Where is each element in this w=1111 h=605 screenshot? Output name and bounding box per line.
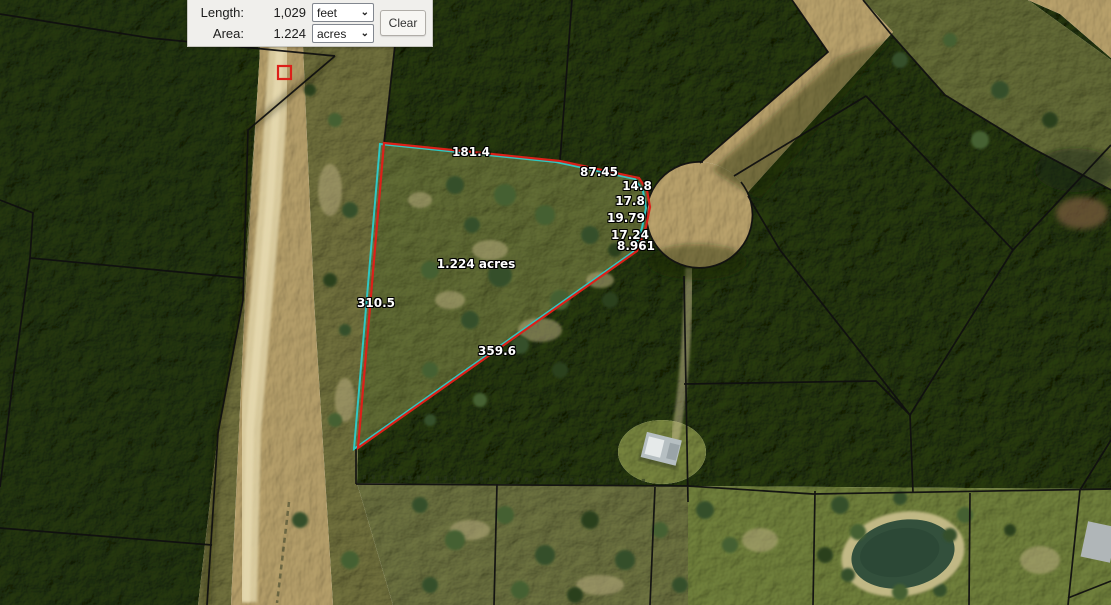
- map-viewport[interactable]: 181.4 87.45 14.8 17.8 19.79 17.24 8.961 …: [0, 0, 1111, 605]
- length-value: 1,029: [250, 5, 306, 20]
- length-label: Length:: [194, 5, 244, 20]
- area-label-panel: Area:: [194, 26, 244, 41]
- chevron-down-icon: ⌄: [361, 8, 369, 18]
- area-value: 1.224: [250, 26, 306, 41]
- aerial-map: [0, 0, 1111, 605]
- length-unit-value: feet: [317, 6, 337, 20]
- clear-button[interactable]: Clear: [380, 10, 426, 36]
- chevron-down-icon: ⌄: [361, 29, 369, 39]
- area-unit-value: acres: [317, 27, 346, 41]
- area-unit-select[interactable]: acres ⌄: [312, 24, 374, 43]
- length-unit-select[interactable]: feet ⌄: [312, 3, 374, 22]
- measure-panel: Length: 1,029 feet ⌄ Area: 1.224 acres ⌄…: [187, 0, 433, 47]
